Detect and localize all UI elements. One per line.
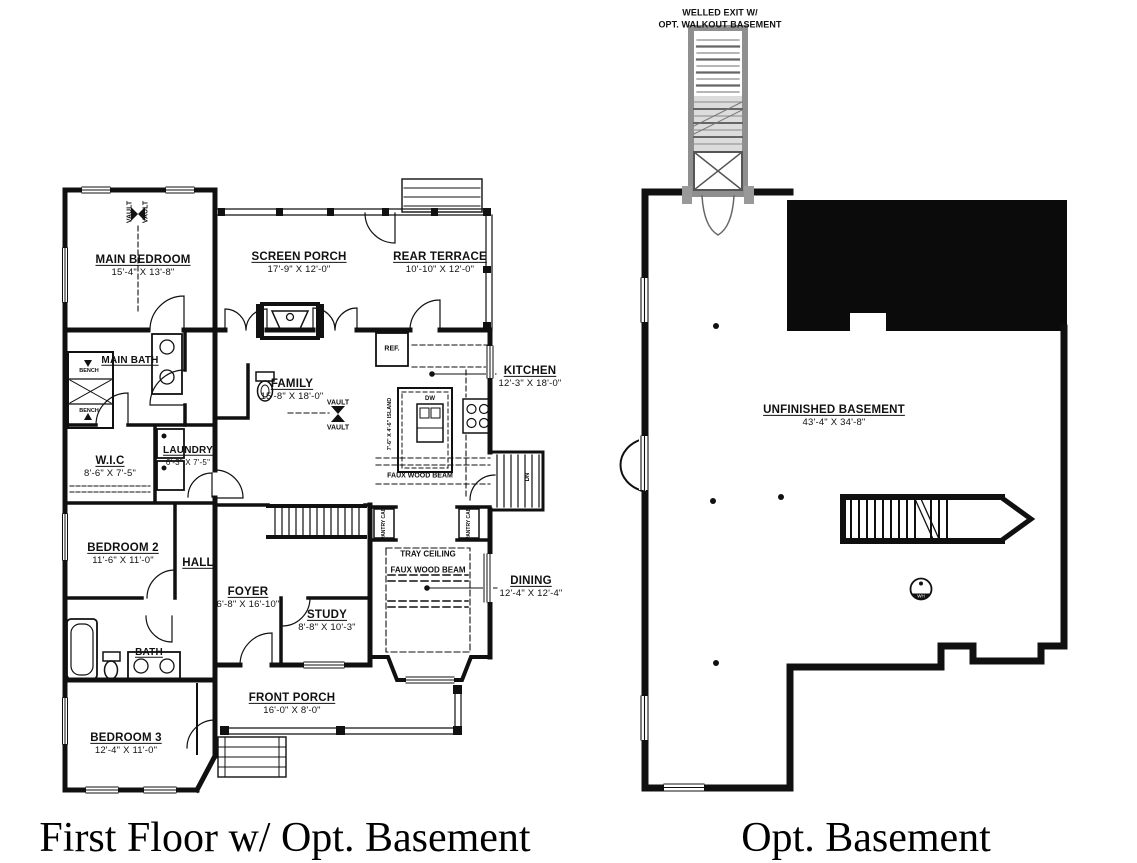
welled-exit-stairwell bbox=[682, 28, 754, 235]
caption-basement: Opt. Basement bbox=[741, 814, 991, 862]
basement-stairs bbox=[843, 497, 1031, 541]
room-label-laundry: LAUNDRY 6'-3" X 7'-5" bbox=[163, 445, 213, 468]
bench-label: BENCH bbox=[79, 368, 99, 374]
room-label-bath: BATH bbox=[135, 647, 163, 660]
vault-label: VAULT bbox=[327, 425, 349, 432]
toilet-icon bbox=[103, 652, 120, 661]
room-label-rear-terrace: REAR TERRACE 10'-10" X 12'-0" bbox=[393, 250, 487, 276]
terrace-steps bbox=[402, 179, 482, 212]
vault-label: VAULT bbox=[143, 201, 150, 223]
water-heater-label: WH bbox=[917, 594, 925, 599]
unexcavated-area bbox=[787, 200, 1067, 331]
tray-ceiling-label: TRAY CEILING bbox=[400, 550, 456, 559]
pantry-cab-label: PANTRY CAB. bbox=[466, 506, 472, 540]
dishwasher-label: DW bbox=[425, 396, 435, 402]
room-label-bedroom-3: BEDROOM 3 12'-4" X 11'-0" bbox=[90, 731, 161, 757]
vault-label: VAULT bbox=[327, 400, 349, 407]
room-label-family: FAMILY 15'-8" X 18'-0" bbox=[260, 377, 323, 403]
range-icon bbox=[463, 399, 490, 433]
pantry-cab-label: PANTRY CAB. bbox=[381, 506, 387, 540]
room-label-dining: DINING 12'-4" X 12'-4" bbox=[499, 574, 562, 600]
faux-wood-beam-label: FAUX WOOD BEAM bbox=[387, 473, 453, 480]
floorplan-page: MAIN BEDROOM 15'-4" X 13'-8" SCREEN PORC… bbox=[0, 0, 1137, 863]
room-label-foyer: FOYER 6'-8" X 16'-10" bbox=[216, 585, 279, 611]
island-label: 7'-6" X 4'-6" ISLAND bbox=[387, 398, 393, 450]
caption-first-floor: First Floor w/ Opt. Basement bbox=[39, 814, 530, 862]
stairs-down-label: DN bbox=[525, 473, 531, 482]
room-label-bedroom-2: BEDROOM 2 11'-6" X 11'-0" bbox=[87, 541, 158, 567]
room-label-front-porch: FRONT PORCH 16'-0" X 8'-0" bbox=[249, 691, 336, 717]
room-label-wic: W.I.C 8'-6" X 7'-5" bbox=[84, 454, 136, 480]
refrigerator-label: REF. bbox=[384, 346, 399, 353]
room-label-unfinished-basement: UNFINISHED BASEMENT 43'-4" X 34'-8" bbox=[763, 403, 905, 429]
room-label-kitchen: KITCHEN 12'-3" X 18'-0" bbox=[498, 364, 561, 390]
faux-wood-beam-label: FAUX WOOD BEAM bbox=[390, 566, 465, 575]
floorplan-drawing bbox=[0, 0, 1137, 863]
room-label-study: STUDY 8'-8" X 10'-3" bbox=[298, 608, 356, 634]
room-label-main-bedroom: MAIN BEDROOM 15'-4" X 13'-8" bbox=[95, 253, 190, 279]
room-label-main-bath: MAIN BATH bbox=[101, 355, 158, 368]
porch-steps bbox=[218, 737, 286, 777]
room-label-screen-porch: SCREEN PORCH 17'-9" X 12'-0" bbox=[251, 250, 346, 276]
bench-label: BENCH bbox=[79, 408, 99, 414]
pantry-cabinets bbox=[374, 509, 479, 538]
basement-stair-landing bbox=[490, 452, 543, 510]
support-column-dots bbox=[710, 323, 784, 666]
room-label-hall: HALL bbox=[182, 556, 213, 570]
kitchen-fixtures bbox=[376, 333, 490, 472]
hall-stairs bbox=[268, 506, 365, 537]
vault-label: VAULT bbox=[127, 201, 134, 223]
basement-window-marks bbox=[639, 278, 704, 793]
hall-bath-fixtures bbox=[67, 619, 180, 680]
welled-exit-label: WELLED EXIT W/ OPT. WALKOUT BASEMENT bbox=[658, 7, 781, 30]
